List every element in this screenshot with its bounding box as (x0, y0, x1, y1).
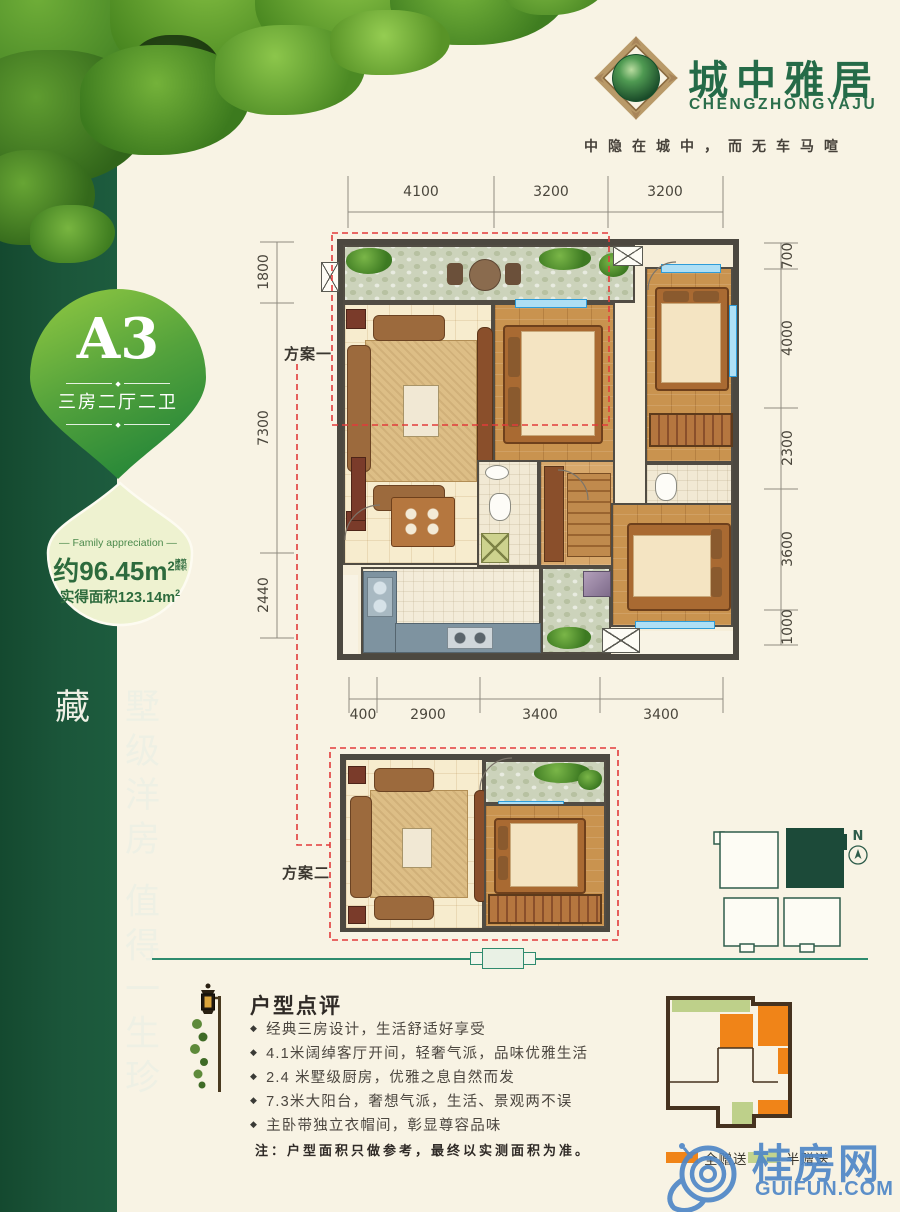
sofa (374, 768, 434, 792)
keyplan-building-1 (720, 832, 778, 888)
review-bullet: ◆4.1米阔绰客厅开间，轻奢气派，品味优雅生活 (250, 1042, 588, 1063)
coffee-table (403, 385, 439, 437)
shaft-icon (321, 262, 339, 292)
dim-bottom-2: 2900 (410, 707, 446, 723)
watermark-en: GUIFUN.COM (755, 1178, 894, 1201)
brand-latin: CHENGZHONGYAJU (689, 96, 877, 114)
separator-line (124, 383, 170, 384)
place-settings (403, 507, 441, 535)
sink (485, 465, 509, 480)
dim-right-1: 700 (780, 243, 796, 270)
toilet (655, 473, 677, 501)
watermark: 桂房网 GUIFUN.COM (652, 1128, 892, 1212)
pillow (498, 826, 508, 850)
elevator-shaft-icon (613, 246, 643, 266)
bullet-diamond-icon: ◆ (250, 1119, 258, 1130)
sideboard (351, 457, 366, 521)
dim-left-2: 7300 (256, 410, 272, 446)
footprint-mask (343, 575, 358, 654)
area-tag-en: — Family appreciation — (38, 537, 198, 549)
area-actual-sup: 2 (175, 588, 180, 598)
brand-emblem-icon (592, 34, 680, 122)
pillow (508, 337, 520, 377)
mattress (521, 331, 595, 436)
balcony-chair (505, 263, 521, 285)
bullet-diamond-icon: ◆ (250, 1047, 258, 1058)
pillow (711, 529, 722, 559)
closet-units (544, 466, 564, 562)
bullet-text: 7.3米大阳台，奢想气派，生活、景观两不误 (266, 1090, 572, 1111)
dim-right-5: 1000 (780, 609, 796, 645)
pillow (711, 567, 722, 597)
side-table (346, 309, 366, 329)
review-bullet: ◆2.4 米墅级厨房，优雅之息自然而发 (250, 1066, 515, 1087)
keyplan-current-unit (786, 828, 844, 888)
diamond-icon: ◆ (112, 380, 123, 388)
balcony-table (469, 259, 501, 291)
mattress (633, 535, 711, 597)
stair-shaft-icon (602, 628, 640, 653)
review-title: 户型点评 (250, 990, 342, 1020)
sofa (374, 896, 434, 920)
pillow (663, 291, 689, 302)
stove (447, 627, 493, 649)
full-gift-zone (720, 1014, 753, 1048)
review-bullet: ◆主卧带独立衣帽间，彰显尊容品味 (250, 1114, 502, 1135)
dim-left-1: 1800 (256, 254, 272, 290)
dim-top-3: 3200 (647, 184, 683, 200)
dim-right-2: 4000 (780, 320, 796, 356)
dim-bottom-4: 3400 (643, 707, 679, 723)
review-note: 注：户型面积只做参考，最终以实测面积为准。 (255, 1140, 591, 1159)
kitchen-sink (367, 577, 393, 617)
separator-line (124, 424, 170, 425)
poster: 城中雅居 CHENGZHONGYAJU 中隐在城中，而无车马喧 A3 ◆ 三房二… (0, 0, 900, 1212)
bullet-text: 经典三房设计，生活舒适好享受 (266, 1018, 486, 1039)
divider-ornament (482, 948, 524, 969)
plan1-label: 方案一 (284, 343, 332, 364)
dim-right-4: 3600 (780, 531, 796, 567)
shower (481, 533, 509, 563)
separator-line (66, 383, 112, 384)
coffee-table (402, 828, 432, 868)
sofa (347, 345, 371, 472)
dim-left-3: 2440 (256, 577, 272, 613)
street-lamp-icon (188, 980, 243, 1098)
half-gift-zone (732, 1102, 753, 1126)
window (515, 299, 587, 308)
dim-top-1: 4100 (403, 184, 439, 200)
area-build: 约96.45m2建筑面积 (30, 551, 210, 588)
floorplan-alt (340, 754, 610, 932)
wardrobe (488, 894, 602, 924)
full-gift-zone (758, 1004, 790, 1046)
area-actual: 实得面积123.14m2 (30, 586, 210, 607)
window (635, 621, 715, 629)
badge-separator: ◆ (66, 419, 170, 430)
pillow (498, 856, 508, 880)
unit-layout: 三房二厅二卫 (48, 388, 188, 414)
keyplan-building-3 (724, 898, 778, 946)
pillow (693, 291, 719, 302)
keyplan-building-4 (784, 898, 840, 946)
plan2-label: 方案二 (282, 862, 330, 883)
bullet-diamond-icon: ◆ (250, 1023, 258, 1034)
pillow (508, 387, 520, 427)
bullet-text: 2.4 米墅级厨房，优雅之息自然而发 (266, 1066, 515, 1087)
keyplan: N (700, 820, 880, 955)
window (661, 264, 721, 273)
diamond-icon: ◆ (112, 421, 123, 429)
side-table (348, 906, 366, 924)
window (729, 305, 737, 377)
mattress (510, 823, 578, 887)
brand-tagline: 中隐在城中，而无车马喧 (584, 136, 884, 156)
toilet (489, 493, 511, 521)
bullet-text: 4.1米阔绰客厅开间，轻奢气派，品味优雅生活 (266, 1042, 588, 1063)
bullet-diamond-icon: ◆ (250, 1071, 258, 1082)
watermark-spiral-icon (652, 1128, 748, 1212)
separator-line (66, 424, 112, 425)
balcony-chair (447, 263, 463, 285)
full-gift-zone (758, 1100, 789, 1116)
mattress (661, 303, 721, 383)
unit-code: A3 (60, 306, 176, 372)
dim-top-2: 3200 (533, 184, 569, 200)
side-table (348, 766, 366, 784)
area-sup: 2 (167, 558, 174, 573)
review-bullet: ◆7.3米大阳台，奢想气派，生活、景观两不误 (250, 1090, 572, 1111)
sofa (373, 315, 445, 341)
gifted-area-schematic (658, 990, 803, 1138)
dim-bottom-1: 400 (350, 707, 377, 723)
area-note: 建筑面积 (175, 560, 187, 572)
sofa (350, 796, 372, 898)
review-bullet: ◆经典三房设计，生活舒适好享受 (250, 1018, 486, 1039)
north-label: N (853, 829, 864, 844)
foliage-blob (330, 10, 450, 75)
floorplan-main (337, 239, 739, 660)
mat (583, 571, 611, 597)
dim-right-3: 2300 (780, 430, 796, 466)
bullet-diamond-icon: ◆ (250, 1095, 258, 1106)
dim-bottom-3: 3400 (522, 707, 558, 723)
vertical-slogan: 墅级洋房 值得一生珍藏 (34, 688, 174, 1108)
bullet-text: 主卧带独立衣帽间，彰显尊容品味 (266, 1114, 502, 1135)
wardrobe (649, 413, 733, 447)
closet-hangers (567, 473, 611, 557)
